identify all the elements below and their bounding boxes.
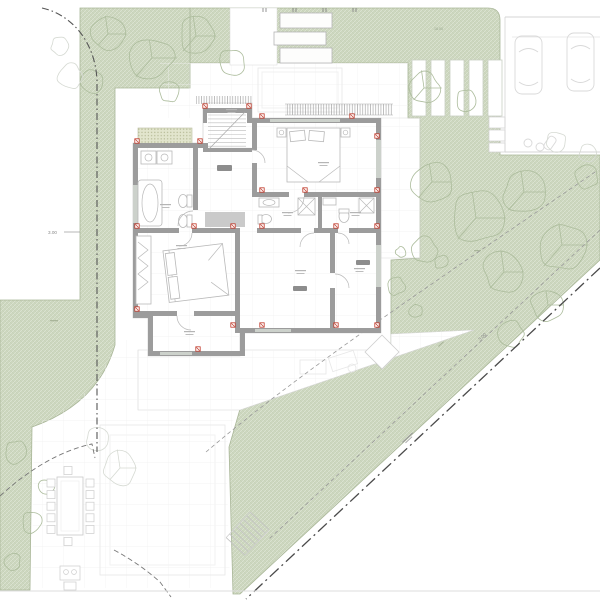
hall-closet bbox=[205, 212, 245, 227]
section-marker bbox=[231, 224, 235, 228]
pillow bbox=[309, 130, 325, 141]
bedroom-2-furniture bbox=[163, 244, 229, 303]
section-marker bbox=[247, 104, 251, 108]
washbasin bbox=[323, 198, 336, 205]
wall-segment bbox=[314, 228, 338, 233]
wall-segment bbox=[252, 118, 257, 150]
section-marker bbox=[135, 307, 139, 311]
chair bbox=[47, 479, 55, 487]
step bbox=[489, 117, 505, 128]
chair bbox=[47, 502, 55, 510]
section-marker bbox=[350, 114, 354, 118]
wall-segment bbox=[349, 228, 381, 233]
section-marker bbox=[375, 323, 379, 327]
wall-segment bbox=[252, 163, 257, 197]
wall-segment bbox=[257, 192, 289, 197]
bidet bbox=[179, 215, 188, 228]
wall-segment bbox=[203, 108, 207, 123]
wall-segment bbox=[257, 228, 301, 233]
wall-segment bbox=[193, 148, 198, 210]
wall-segment bbox=[133, 228, 179, 233]
toilet bbox=[179, 195, 188, 208]
hall-furniture bbox=[217, 165, 232, 171]
wall-segment bbox=[235, 233, 240, 333]
dimension-text-left: 3.00 bbox=[48, 230, 57, 235]
bedroom-1-furniture bbox=[277, 128, 350, 182]
sink bbox=[157, 151, 172, 164]
section-marker bbox=[260, 323, 264, 327]
section-marker bbox=[375, 188, 379, 192]
chair bbox=[86, 514, 94, 522]
garage-steps bbox=[489, 117, 505, 152]
step bbox=[489, 143, 505, 152]
planter bbox=[274, 32, 326, 45]
section-marker bbox=[198, 139, 202, 143]
section-marker bbox=[334, 323, 338, 327]
pillow bbox=[290, 130, 306, 142]
window bbox=[270, 119, 340, 122]
chair bbox=[47, 491, 55, 499]
section-marker bbox=[375, 134, 379, 138]
wall-segment bbox=[133, 143, 208, 148]
nightstand bbox=[277, 128, 286, 137]
side-walkway bbox=[381, 118, 420, 258]
nightstand bbox=[341, 128, 350, 137]
section-marker bbox=[334, 224, 338, 228]
wall-segment bbox=[247, 108, 252, 123]
dimension-text-top: 18.00 bbox=[434, 27, 443, 31]
window bbox=[376, 245, 381, 287]
tree-outline bbox=[51, 37, 69, 55]
slab bbox=[450, 60, 464, 116]
pergola-hatch bbox=[285, 104, 393, 115]
window bbox=[255, 329, 291, 332]
pergola-hatch-small bbox=[196, 96, 252, 104]
wall-segment bbox=[330, 233, 335, 273]
section-marker bbox=[196, 347, 200, 351]
sink bbox=[141, 151, 156, 164]
scooter bbox=[524, 135, 557, 151]
parked-car bbox=[567, 33, 594, 91]
site-plan-drawing: 3.00 3.00 18.00 bbox=[0, 0, 600, 600]
chair bbox=[47, 514, 55, 522]
window bbox=[376, 140, 381, 178]
room-furniture bbox=[293, 286, 307, 291]
section-marker bbox=[135, 139, 139, 143]
site-plan-canvas: 3.00 3.00 18.00 bbox=[0, 0, 600, 600]
entry-walkway bbox=[230, 8, 277, 65]
wall-segment bbox=[304, 192, 381, 197]
tiny-annotation-mark bbox=[50, 320, 58, 321]
wall-segment bbox=[318, 197, 322, 230]
wall-segment bbox=[203, 148, 252, 152]
chair bbox=[86, 502, 94, 510]
chair bbox=[86, 525, 94, 533]
window bbox=[160, 352, 192, 355]
section-marker bbox=[203, 104, 207, 108]
wall-segment bbox=[133, 311, 177, 316]
section-marker bbox=[135, 224, 139, 228]
step bbox=[489, 130, 505, 141]
house-plan bbox=[133, 96, 393, 356]
chair bbox=[86, 491, 94, 499]
section-marker bbox=[260, 224, 264, 228]
tree-outline bbox=[57, 63, 83, 89]
wall-segment bbox=[148, 313, 153, 356]
toilet-tank bbox=[339, 209, 349, 213]
section-marker bbox=[375, 224, 379, 228]
slab bbox=[469, 60, 483, 116]
section-marker bbox=[260, 188, 264, 192]
parked-car bbox=[515, 36, 542, 94]
tiny-annotation-mark bbox=[474, 250, 481, 251]
toilet-tank bbox=[258, 215, 262, 224]
section-marker bbox=[192, 224, 196, 228]
chair bbox=[64, 467, 72, 475]
slab bbox=[488, 60, 502, 116]
section-marker bbox=[303, 188, 307, 192]
chair bbox=[47, 525, 55, 533]
garage bbox=[505, 17, 600, 152]
window bbox=[133, 185, 138, 223]
section-marker bbox=[231, 323, 235, 327]
planter bbox=[280, 48, 332, 63]
room-furniture bbox=[356, 260, 370, 265]
planter bbox=[280, 13, 332, 28]
bidet-tank bbox=[187, 215, 192, 227]
wall-segment bbox=[192, 228, 240, 233]
wall-segment bbox=[194, 311, 236, 316]
chair bbox=[64, 538, 72, 546]
section-marker bbox=[260, 114, 264, 118]
bathtub bbox=[138, 180, 162, 226]
chair bbox=[86, 479, 94, 487]
toilet-tank bbox=[187, 195, 192, 207]
